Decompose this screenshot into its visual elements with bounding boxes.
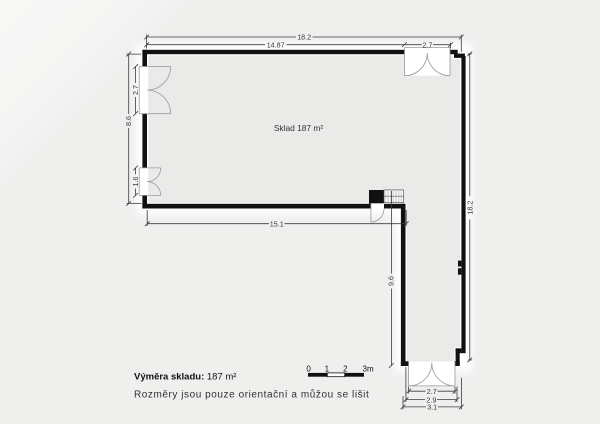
svg-text:Výměra skladu: 187 m²: Výměra skladu: 187 m² [134, 371, 236, 382]
svg-text:2.7: 2.7 [131, 85, 140, 95]
svg-text:9.6: 9.6 [387, 276, 396, 286]
svg-text:1.6: 1.6 [131, 177, 140, 187]
svg-text:18.2: 18.2 [465, 201, 474, 215]
svg-text:3m: 3m [363, 365, 374, 374]
svg-text:1: 1 [325, 365, 330, 374]
svg-text:15.1: 15.1 [270, 219, 284, 228]
svg-text:2.7: 2.7 [422, 40, 432, 49]
svg-text:2: 2 [343, 365, 348, 374]
svg-text:Rozměry jsou pouze orientační: Rozměry jsou pouze orientační a můžou se… [134, 389, 369, 401]
svg-text:14.87: 14.87 [267, 40, 285, 49]
svg-text:Sklad 187 m²: Sklad 187 m² [274, 123, 324, 133]
svg-text:0: 0 [306, 365, 311, 374]
svg-text:18.2: 18.2 [297, 33, 311, 42]
svg-text:3.1: 3.1 [427, 403, 437, 412]
svg-text:8.6: 8.6 [124, 116, 133, 126]
